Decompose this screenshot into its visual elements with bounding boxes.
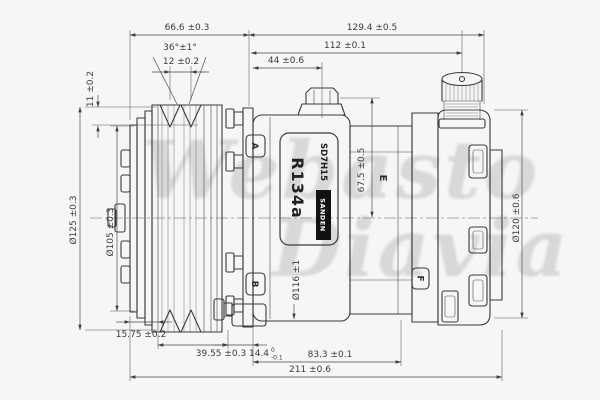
dim-to-valve-center: 112 ±0.1 — [251, 30, 462, 74]
brand-label: SANDEN — [319, 198, 327, 231]
dim-67-5-label: 67.5 ±0.5 — [357, 148, 367, 193]
dim-125-label: Ø125 ±0.3 — [68, 196, 79, 245]
dim-116-label: Ø116 ±1 — [291, 260, 302, 300]
port-f-label: F — [415, 275, 425, 281]
dim-120-label: Ø120 ±0.6 — [511, 193, 522, 242]
dim-groove-pitch: 12 ±0.2 — [152, 57, 209, 100]
rear-mounting-lug — [442, 291, 458, 322]
dim-groove-to-mount: 39.55 ±0.3 — [158, 330, 246, 359]
dim-39-55-label: 39.55 ±0.3 — [196, 349, 246, 359]
dim-44-label: 44 ±0.6 — [268, 56, 304, 66]
clutch-spring-tab — [121, 241, 130, 258]
dim-83-3-label: 83.3 ±0.1 — [308, 350, 353, 360]
technical-drawing: Webasto Diavia — [0, 0, 600, 400]
dim-14-4-label: 14.4 — [249, 349, 269, 359]
dim-groove-angle: 36°±1° — [153, 43, 206, 104]
model-label: SD7H15 — [318, 143, 328, 181]
port-e-label: E — [377, 175, 388, 182]
port-b-marker: B — [246, 273, 265, 295]
dim-mount-to-face: 14.4 0 -0.1 — [214, 326, 283, 366]
dim-12-label: 12 ±0.2 — [163, 57, 199, 67]
mounting-bolt — [226, 296, 243, 315]
port-a-label: A — [249, 143, 259, 150]
dim-15-75-label: 15.75 ±0.2 — [116, 330, 166, 340]
dim-overall-length: 211 ±0.6 — [130, 316, 502, 381]
dim-105-label: Ø105 ±0.3 — [105, 208, 116, 257]
clutch-spring-tab — [121, 175, 130, 192]
dim-to-plug-center: 44 ±0.6 — [253, 56, 322, 118]
dim-129-4-label: 129.4 ±0.5 — [347, 23, 397, 33]
belt-groove — [160, 310, 180, 332]
dim-66-6-label: 66.6 ±0.3 — [165, 23, 210, 33]
relief-valve-cap — [439, 73, 485, 129]
clutch-spring-tab — [121, 150, 130, 167]
port-b-label: B — [249, 281, 259, 288]
oil-plug — [298, 88, 345, 115]
refrigerant-label: R134a — [288, 157, 307, 219]
dim-36deg-label: 36°±1° — [163, 43, 197, 53]
dim-14-4-tol-lo: -0.1 — [271, 355, 283, 362]
dim-14-4-tol-hi: 0 — [271, 347, 275, 354]
dim-body-diameter: Ø116 ±1 — [291, 260, 302, 319]
dim-11-label: 11 ±0.2 — [86, 71, 96, 107]
clutch-spring-tab — [121, 266, 130, 283]
dim-112-label: 112 ±0.1 — [324, 41, 366, 51]
mounting-bolt — [226, 253, 243, 272]
dim-211-label: 211 ±0.6 — [289, 365, 331, 375]
drawing-page: Webasto Diavia — [0, 0, 600, 400]
